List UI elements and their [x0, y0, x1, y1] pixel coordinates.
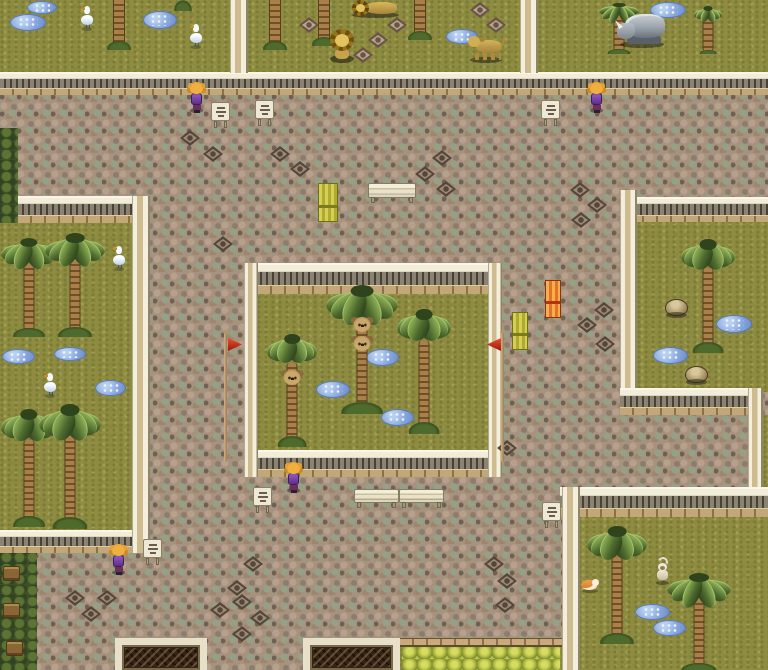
enclosure-wall	[620, 190, 637, 415]
water-puddle	[95, 380, 126, 396]
paving-diamond	[436, 181, 456, 197]
enclosure-wall	[562, 487, 580, 670]
sign-board[interactable]	[211, 102, 230, 128]
south-brick-ledge	[400, 638, 562, 647]
south-gate-west[interactable]	[115, 638, 207, 670]
palm-tree	[44, 228, 106, 335]
palm-tree	[693, 4, 723, 52]
sign-board[interactable]	[542, 502, 561, 528]
sign-board[interactable]	[253, 487, 272, 513]
paving-diamond	[65, 590, 85, 606]
paving-diamond	[595, 336, 615, 352]
south-hedgerow	[402, 646, 560, 670]
banner-yellow	[512, 312, 528, 350]
paving-diamond	[415, 166, 435, 182]
bench[interactable]	[354, 489, 399, 508]
east-edge-strip	[763, 415, 768, 487]
palm-tree	[266, 328, 318, 445]
grass-tuft	[174, 0, 192, 11]
enclosure-wall	[244, 263, 258, 477]
animal-lioness[interactable]	[468, 36, 504, 63]
paving-diamond	[432, 150, 452, 166]
enclosure-wall	[560, 487, 768, 517]
enclosure-wall	[132, 196, 150, 553]
paving-diamond	[81, 606, 101, 622]
palm-tree	[324, 278, 400, 412]
palm-trunk	[266, 0, 284, 48]
water-puddle	[54, 347, 86, 361]
animal-monkey[interactable]	[654, 557, 671, 585]
paving-diamond	[232, 594, 252, 610]
water-puddle	[27, 1, 57, 14]
palm-trunk	[110, 0, 128, 48]
rock	[684, 365, 709, 386]
bench[interactable]	[399, 489, 444, 508]
sign-board[interactable]	[541, 100, 560, 126]
south-gate-east[interactable]	[303, 638, 400, 670]
npc-girl-north-west[interactable]	[188, 82, 205, 113]
npc-girl-center[interactable]	[285, 462, 302, 493]
animal-lion-sitting[interactable]	[329, 29, 355, 63]
water-puddle	[143, 11, 177, 29]
enclosure-wall	[0, 530, 150, 553]
paving-diamond	[571, 212, 591, 228]
game-viewport[interactable]	[0, 0, 768, 670]
crate[interactable]	[6, 641, 23, 656]
paving-diamond	[353, 47, 373, 63]
animal-crane[interactable]	[112, 246, 126, 271]
paving-diamond	[486, 17, 506, 33]
animal-rhino[interactable]	[617, 11, 667, 48]
paving-diamond	[203, 146, 223, 162]
enclosure-wall	[0, 72, 768, 95]
paving-diamond	[570, 182, 590, 198]
red-flagpole	[487, 330, 507, 462]
animal-crane[interactable]	[43, 373, 57, 398]
animal-crane[interactable]	[80, 6, 94, 31]
enclosure-wall	[230, 0, 248, 73]
paving-diamond	[587, 197, 607, 213]
sign-board[interactable]	[255, 100, 274, 126]
palm-tree	[38, 398, 102, 527]
paving-diamond	[368, 32, 388, 48]
bench[interactable]	[368, 183, 416, 203]
animal-lion-lying[interactable]	[352, 0, 399, 18]
west-hedge	[0, 128, 18, 223]
palm-tree	[680, 233, 736, 351]
paving-diamond	[387, 17, 407, 33]
banner-orange	[545, 280, 561, 318]
water-puddle	[2, 349, 35, 364]
paving-diamond	[97, 590, 117, 606]
paving-diamond	[290, 161, 310, 177]
banner-yellow	[318, 183, 338, 222]
paving-diamond	[180, 130, 200, 146]
enclosure-wall	[620, 388, 763, 415]
paving-diamond	[577, 317, 597, 333]
crate[interactable]	[3, 603, 20, 618]
sign-board[interactable]	[143, 539, 162, 565]
red-flagpole	[221, 330, 241, 462]
paving-diamond	[497, 573, 517, 589]
paving-diamond	[470, 2, 490, 18]
animal-crane[interactable]	[189, 24, 203, 49]
paving-diamond	[495, 597, 515, 613]
enclosure-wall	[244, 450, 502, 477]
paving-diamond	[270, 146, 290, 162]
animal-hamster[interactable]	[581, 578, 599, 593]
paving-diamond	[232, 626, 252, 642]
enclosure-wall	[18, 196, 150, 223]
palm-tree	[666, 568, 732, 670]
paving-diamond	[594, 302, 614, 318]
paving-diamond	[250, 610, 270, 626]
paving-diamond	[210, 602, 230, 618]
palm-tree	[396, 302, 452, 432]
npc-girl-south[interactable]	[110, 544, 127, 575]
enclosure-wall	[630, 197, 768, 222]
paving-diamond	[213, 236, 233, 252]
water-puddle	[10, 14, 46, 31]
enclosure-wall	[520, 0, 538, 73]
paving-diamond	[484, 556, 504, 572]
crate[interactable]	[3, 566, 20, 581]
palm-trunk	[411, 0, 429, 38]
npc-girl-north-east[interactable]	[588, 82, 605, 113]
paving-diamond	[243, 556, 263, 572]
